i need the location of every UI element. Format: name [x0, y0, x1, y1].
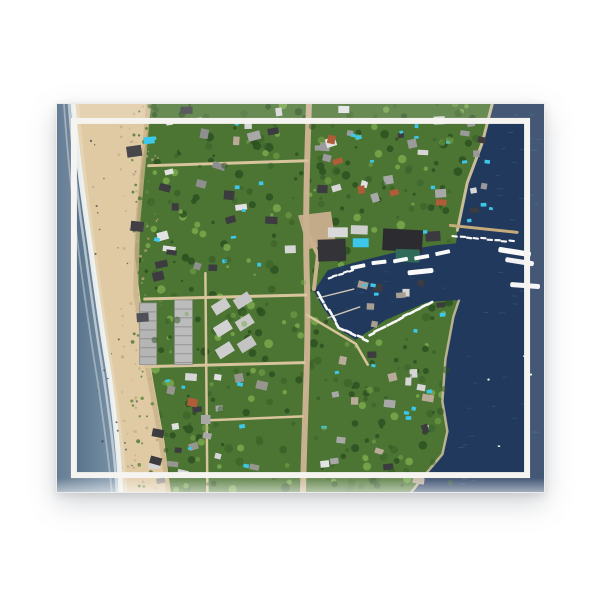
framed-print: [56, 103, 545, 493]
aerial-photo-artwork: [57, 104, 544, 492]
product-photo-background: [0, 0, 600, 600]
scene-layers: [57, 104, 544, 492]
